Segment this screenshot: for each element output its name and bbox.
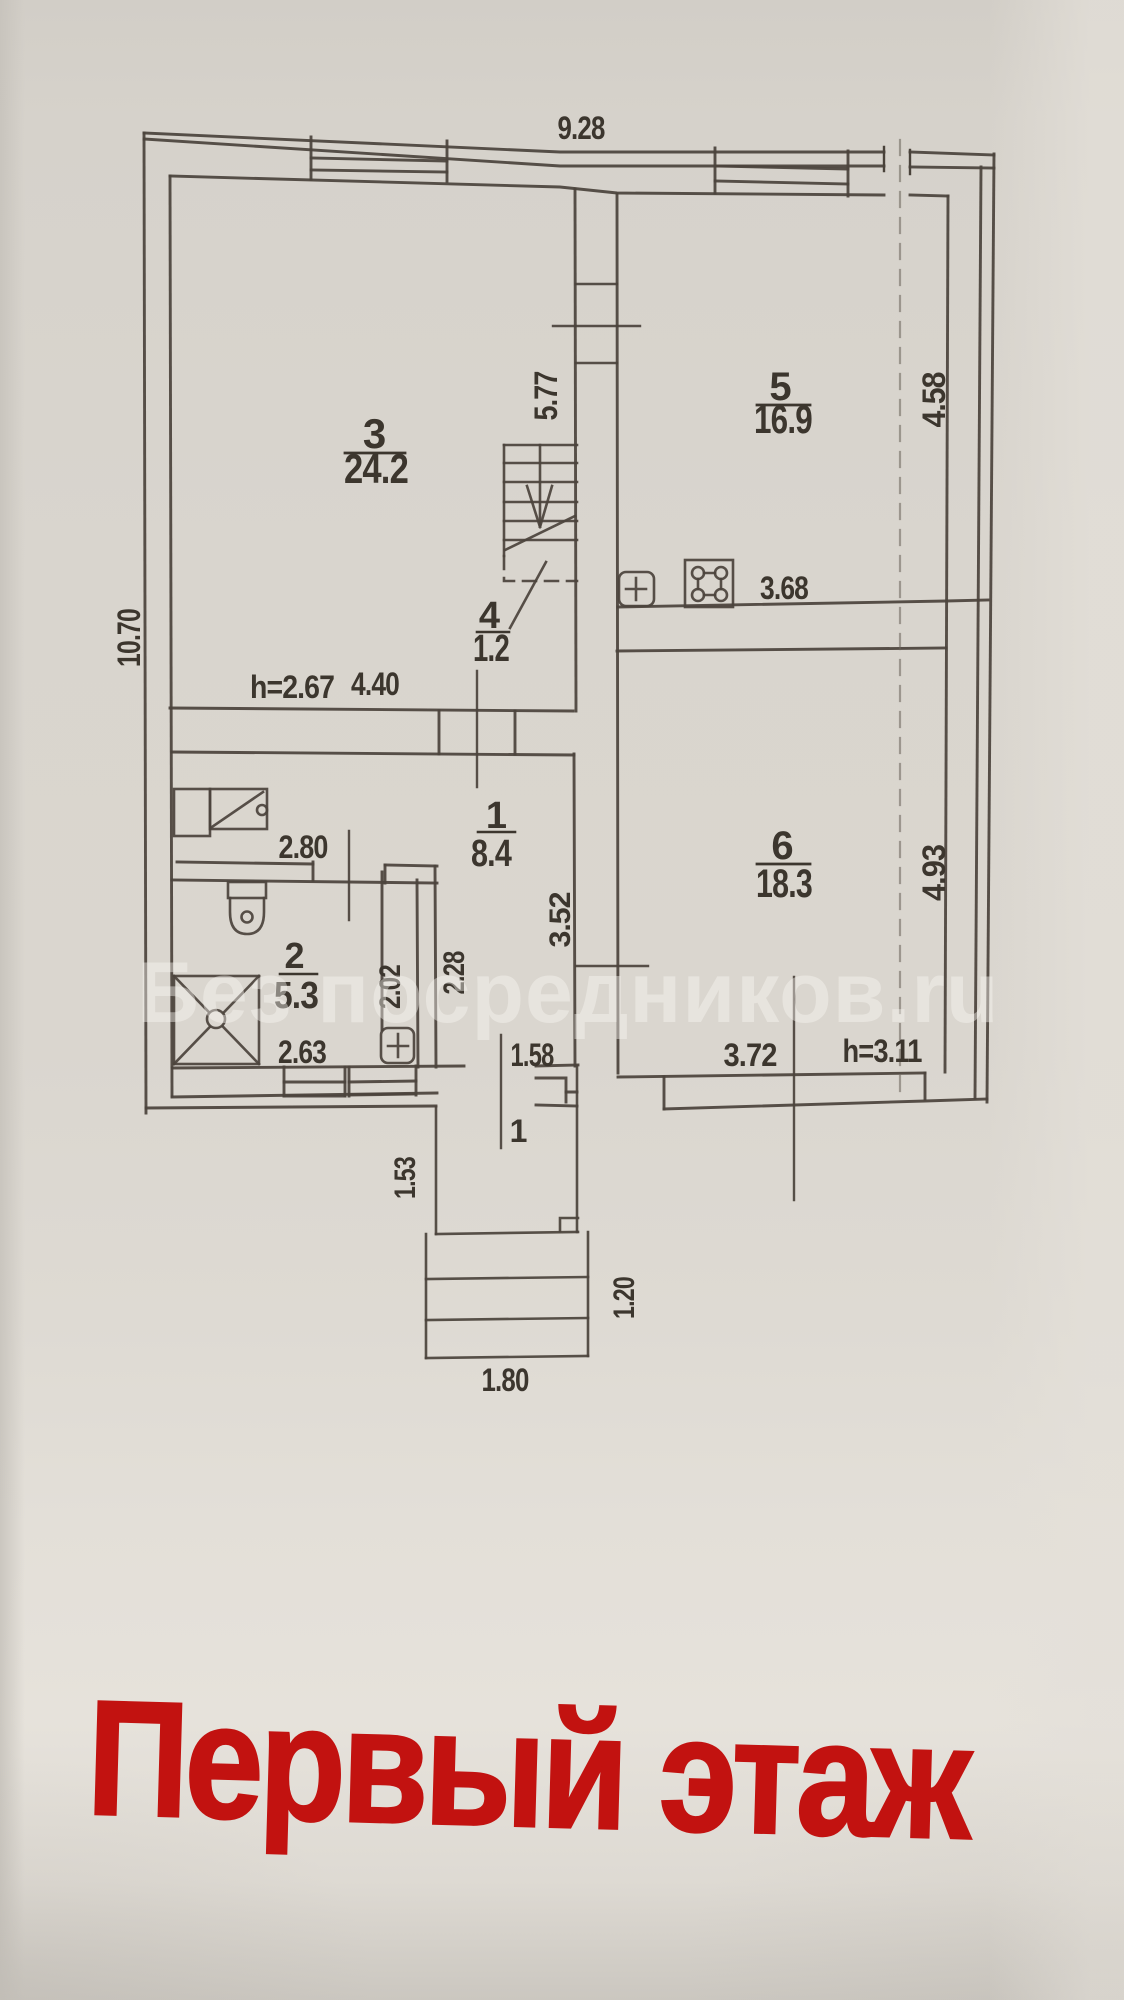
svg-text:16.9: 16.9 [754, 398, 812, 442]
svg-text:3.52: 3.52 [544, 892, 577, 947]
svg-text:4.93: 4.93 [916, 845, 952, 901]
svg-text:24.2: 24.2 [344, 445, 408, 492]
svg-text:10.70: 10.70 [111, 609, 147, 667]
svg-text:1: 1 [510, 1113, 527, 1149]
svg-text:8.4: 8.4 [471, 833, 512, 875]
svg-text:1.20: 1.20 [608, 1277, 641, 1319]
svg-text:1.58: 1.58 [511, 1037, 554, 1073]
svg-text:Без посредников.ru: Без посредников.ru [137, 945, 999, 1041]
svg-text:2.80: 2.80 [279, 829, 328, 865]
svg-text:1.53: 1.53 [389, 1157, 422, 1199]
svg-text:4.40: 4.40 [351, 666, 399, 702]
svg-text:3.68: 3.68 [760, 570, 808, 606]
svg-text:18.3: 18.3 [756, 862, 812, 906]
svg-text:3.72: 3.72 [724, 1037, 777, 1073]
svg-text:1.2: 1.2 [473, 628, 509, 670]
svg-text:9.28: 9.28 [558, 110, 605, 146]
svg-text:5.77: 5.77 [528, 371, 564, 420]
svg-text:h=2.67: h=2.67 [250, 669, 334, 705]
svg-text:4.58: 4.58 [916, 372, 952, 427]
svg-text:1.80: 1.80 [482, 1362, 529, 1398]
